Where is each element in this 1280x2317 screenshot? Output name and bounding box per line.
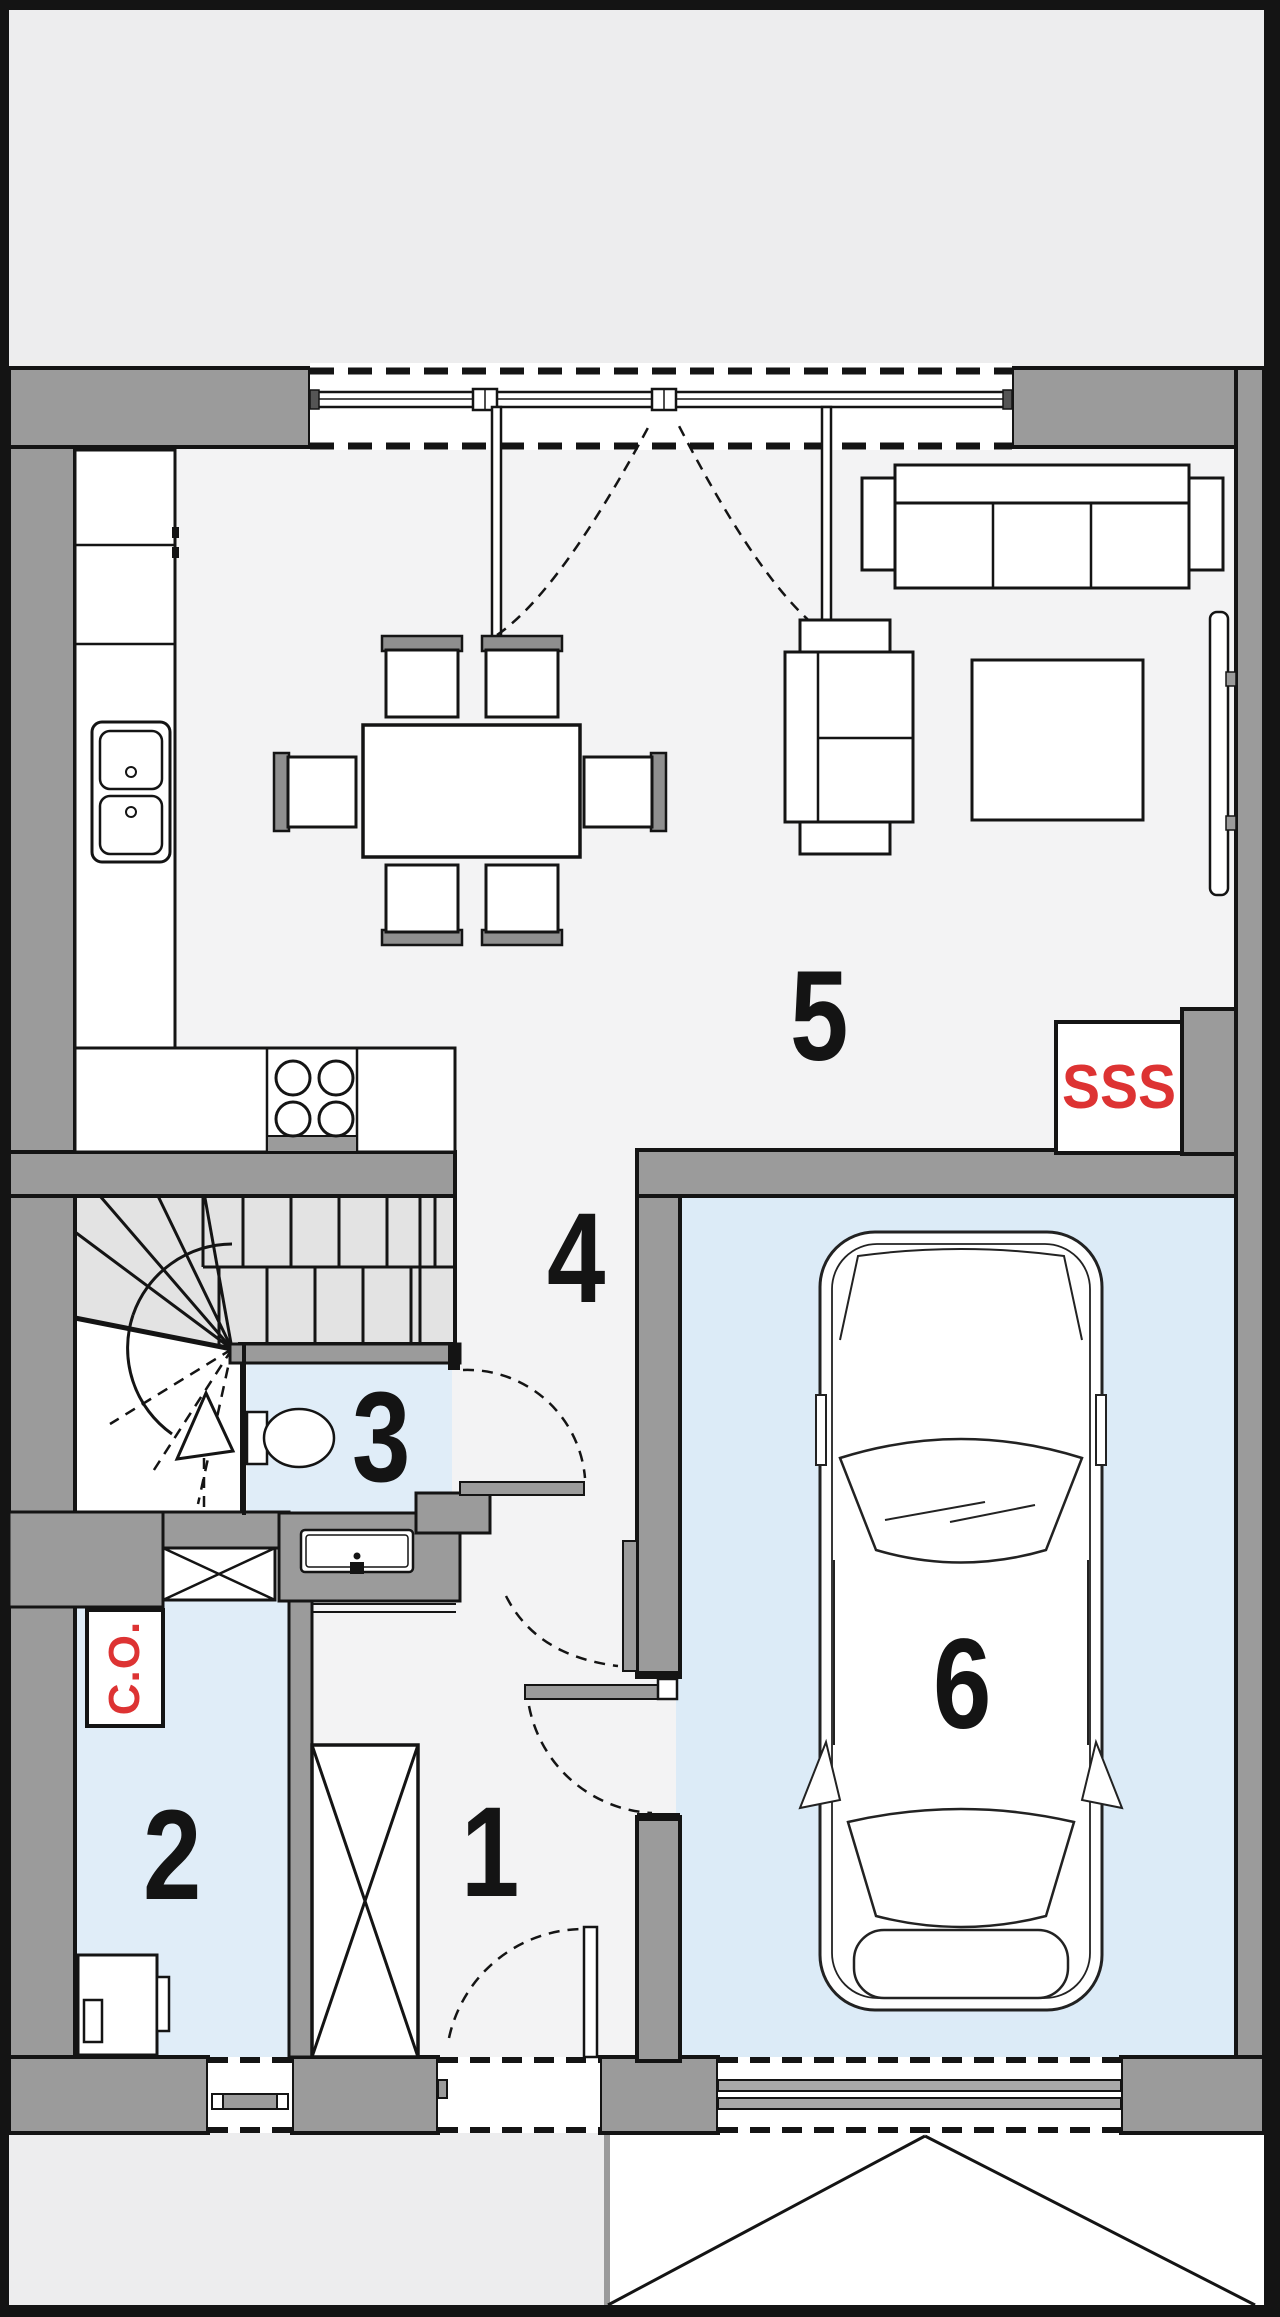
boiler-symbol-text: C.O. bbox=[100, 1621, 150, 1715]
fireplace-symbol-text: SSS bbox=[1062, 1052, 1176, 1123]
boiler-symbol-box: C.O. bbox=[85, 1608, 165, 1728]
wall-kitchen-stairs bbox=[9, 1152, 455, 1196]
wall-stairs-boiler-thick bbox=[9, 1512, 163, 1607]
tv-panel bbox=[1210, 612, 1228, 895]
wall-bathroom-top bbox=[230, 1344, 460, 1363]
toilet bbox=[264, 1409, 334, 1467]
stove-burner bbox=[319, 1102, 353, 1136]
wall-bathroom-door-jamb bbox=[416, 1493, 490, 1533]
stove-burner bbox=[276, 1061, 310, 1095]
dining-chair bbox=[486, 865, 558, 932]
front-yard-area bbox=[9, 2133, 609, 2305]
wall-garage-left-upper bbox=[637, 1196, 680, 1677]
room-label-1: 1 bbox=[461, 1789, 517, 1917]
garage-door-panel bbox=[718, 2080, 1121, 2091]
entry-door-leaf bbox=[584, 1927, 597, 2057]
wall-entry-garage-pier bbox=[600, 2057, 718, 2133]
dining-chair bbox=[386, 865, 458, 932]
stove-burner bbox=[319, 1061, 353, 1095]
wall-garage-left-lower bbox=[637, 1817, 680, 2061]
terrace-door-leaf-left bbox=[492, 407, 501, 637]
wall-living-garage bbox=[637, 1150, 1236, 1196]
wall-bottom-a bbox=[9, 2057, 208, 2133]
coffee-table bbox=[972, 660, 1143, 820]
garage-person-door-leaf bbox=[525, 1685, 667, 1699]
wall-garage-front-right bbox=[1121, 2057, 1264, 2133]
sofa bbox=[895, 465, 1189, 588]
terrace-door-leaf-right bbox=[822, 407, 831, 637]
floor-plan: 1 2 3 4 5 6 C.O. SSS bbox=[0, 0, 1280, 2317]
wall-right bbox=[1236, 368, 1264, 2133]
bathroom-door-leaf bbox=[460, 1482, 584, 1495]
wall-top-left bbox=[9, 368, 310, 447]
stove-burner bbox=[276, 1102, 310, 1136]
room-label-2: 2 bbox=[143, 1792, 199, 1920]
dining-table bbox=[363, 725, 580, 857]
room-label-3: 3 bbox=[352, 1374, 408, 1502]
hall-wardrobe bbox=[312, 1745, 418, 2057]
wall-fireplace-patch bbox=[1182, 1009, 1236, 1154]
wall-left bbox=[9, 368, 75, 2133]
hall-door-leaf bbox=[623, 1541, 637, 1671]
room-label-5: 5 bbox=[790, 953, 846, 1081]
dining-chair bbox=[486, 650, 558, 717]
terrace-area bbox=[9, 10, 1271, 368]
room-label-6: 6 bbox=[933, 1621, 989, 1749]
dining-chair bbox=[288, 757, 356, 827]
wall-top-right bbox=[1012, 368, 1264, 447]
plan-drawing bbox=[0, 0, 1280, 2317]
dining-chair bbox=[584, 757, 652, 827]
room-label-4: 4 bbox=[547, 1195, 603, 1323]
fireplace-symbol-box: SSS bbox=[1054, 1020, 1184, 1155]
wall-boiler-hall bbox=[289, 1548, 312, 2057]
dining-chair bbox=[386, 650, 458, 717]
driveway-area bbox=[604, 2133, 1264, 2305]
kitchen-counter-bottom bbox=[75, 1048, 455, 1152]
wall-bottom-b bbox=[292, 2057, 438, 2133]
